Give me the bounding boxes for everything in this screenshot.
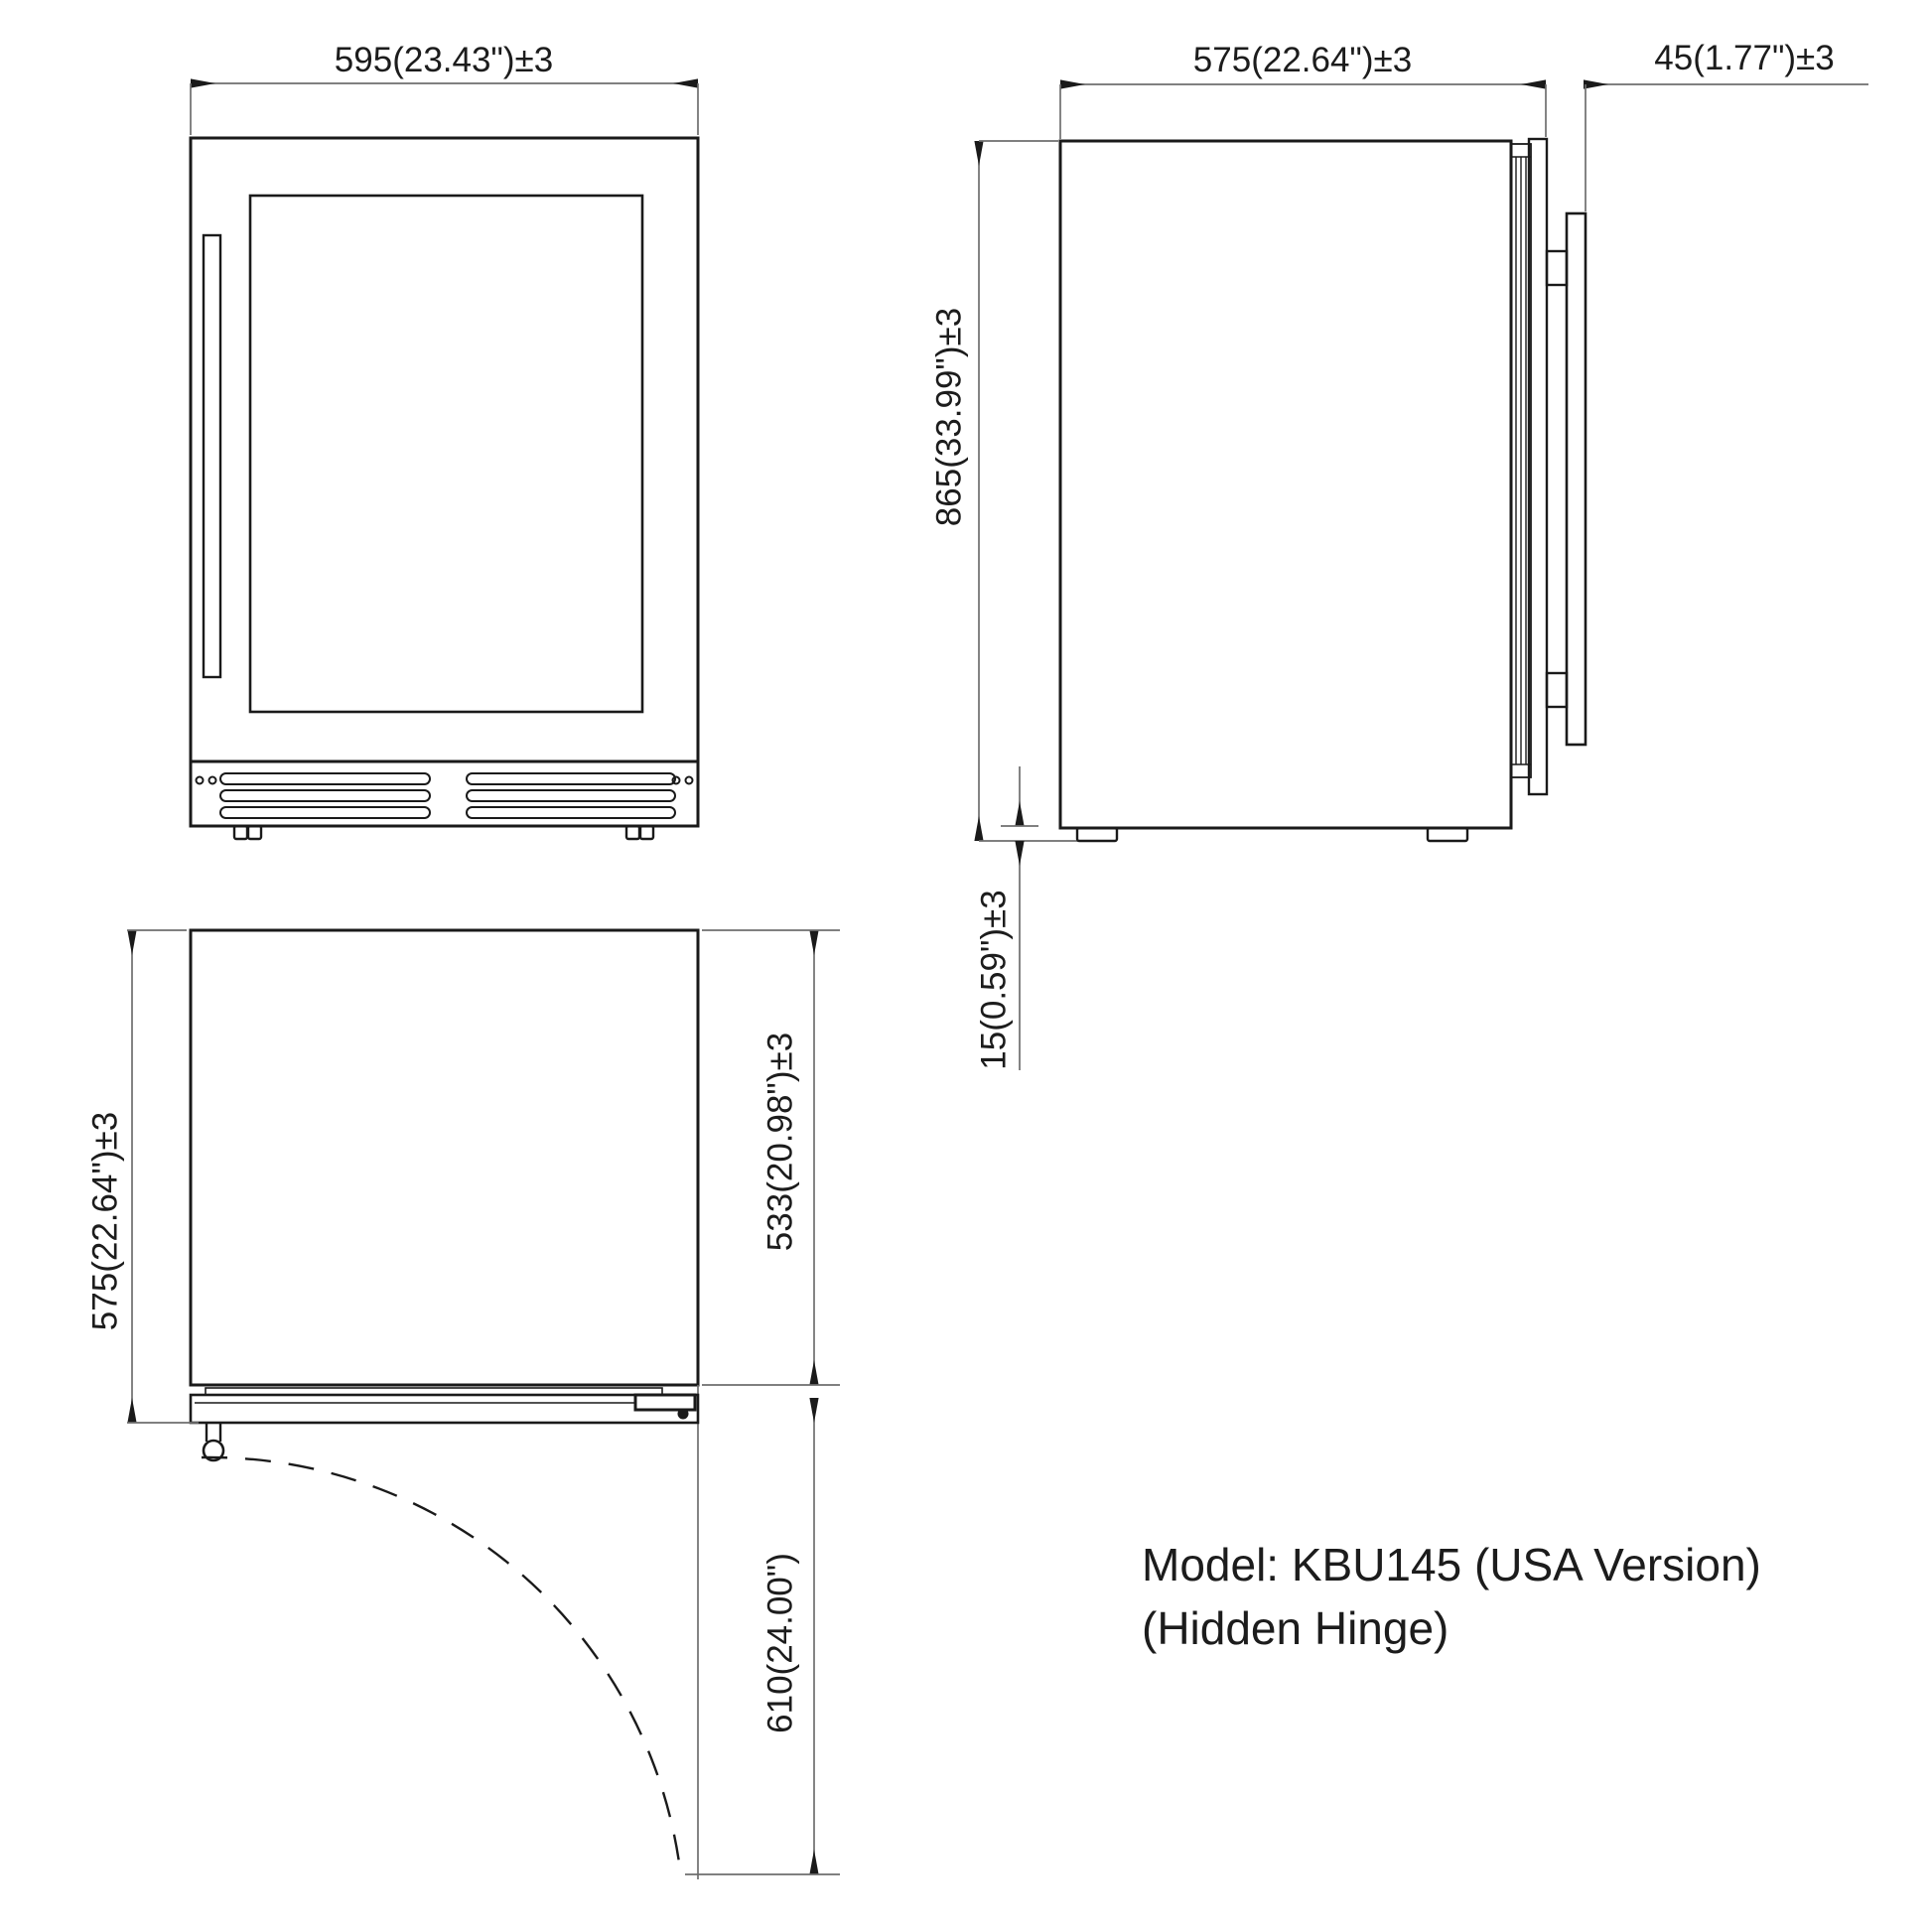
outer-door-panel [1567, 213, 1586, 745]
hinge-pin [678, 1409, 689, 1420]
vent-grille [191, 761, 698, 826]
model-name-line1: Model: KBU145 (USA Version) [1142, 1539, 1761, 1590]
door-swing-dimension-label: 610(24.00") [760, 1553, 799, 1733]
cabinet-depth-dimension-label: 533(20.98")±3 [760, 1033, 799, 1251]
foot-height-dimension-label: 15(0.59")±3 [974, 890, 1013, 1069]
top-depth-dimension-label: 575(22.64")±3 [85, 1112, 124, 1330]
side-view [979, 84, 1868, 1070]
hinge-plate [635, 1395, 695, 1410]
front-view [191, 83, 698, 839]
door-thickness-dimension [1584, 84, 1868, 211]
front-door-outline [191, 138, 698, 761]
side-height-dimension-label: 865(33.99")±3 [929, 308, 968, 526]
top-view [127, 930, 840, 1879]
leveling-foot [626, 826, 653, 839]
top-cabinet-body [191, 930, 698, 1385]
model-info: Model: KBU145 (USA Version) (Hidden Hing… [1142, 1539, 1761, 1654]
door-thickness-dimension-label: 45(1.77")±3 [1654, 39, 1834, 77]
front-width-dimension [191, 83, 698, 135]
top-door-handle [204, 1423, 223, 1460]
leveling-foot [1077, 828, 1117, 841]
hinge-block [1547, 673, 1567, 707]
leveling-foot [234, 826, 261, 839]
door-swing-arc [202, 1457, 681, 1877]
dimension-drawing: 595(23.43")±3 575(22.64")±3 45(1.77")±3 … [0, 0, 1932, 1932]
model-name-line2: (Hidden Hinge) [1142, 1602, 1449, 1654]
front-width-dimension-label: 595(23.43")±3 [335, 41, 553, 79]
top-depth-dimension [127, 930, 199, 1423]
hinge-block [1547, 251, 1567, 285]
side-depth-dimension [1060, 84, 1546, 139]
side-cabinet-body [1060, 141, 1511, 828]
top-door-closed [191, 1388, 698, 1423]
side-depth-dimension-label: 575(22.64")±3 [1193, 41, 1412, 79]
leveling-foot [1428, 828, 1467, 841]
